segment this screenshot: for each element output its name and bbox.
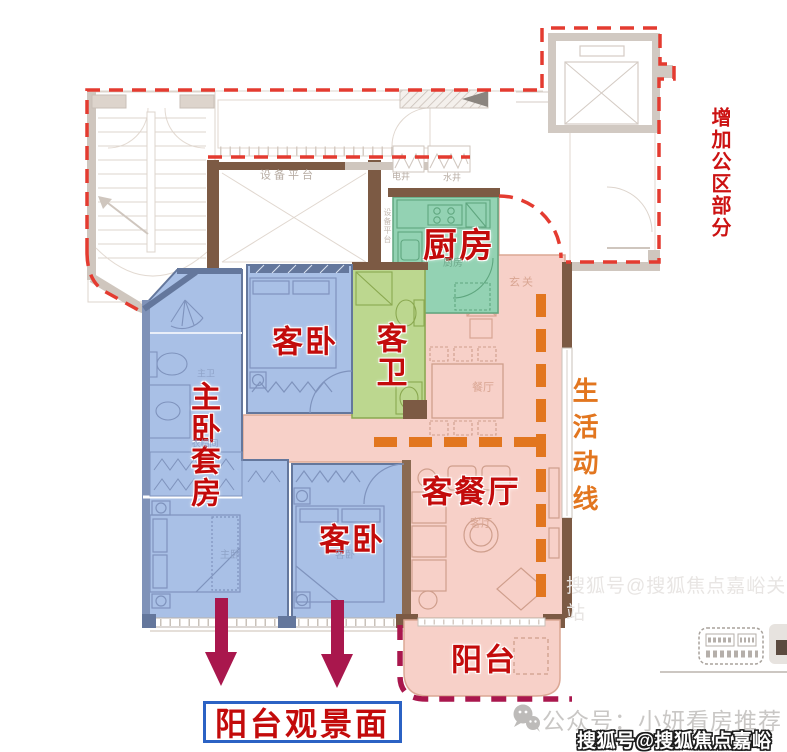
master-bath-small-label: 主卫 — [197, 370, 215, 379]
balcony-view-callout: 阳台观景面 — [203, 701, 402, 743]
added-public-area-label: 增加公区部分 — [709, 107, 729, 239]
kitchen-small-label: 厨房 — [443, 259, 463, 269]
water-shaft-label: 水井 — [443, 174, 461, 183]
electric-shaft-label: 电井 — [392, 173, 410, 182]
life-line-label: 生活动线 — [571, 377, 597, 521]
floorplan-image: 增加公区部分 厨房 客卧 客卫 主卧套房 客餐厅 客卧 阳台 生活动线 设备平台… — [0, 0, 787, 752]
watermark-sohu-faint: 搜狐号@搜狐焦点嘉峪关站 — [566, 571, 787, 625]
closet-small-label: 衣帽间 — [191, 440, 218, 449]
equipment-platform-side-label: 设备平台 — [383, 208, 391, 244]
dashed-stamp-icon — [660, 624, 787, 672]
room-label-balcony: 阳台 — [451, 645, 517, 676]
guest-bed-small-label: 客卧 — [335, 551, 355, 561]
master-bed-small-label: 主卧 — [220, 551, 240, 561]
equipment-platform-label: 设备平台 — [260, 171, 316, 182]
balcony-view-text: 阳台观景面 — [215, 699, 390, 745]
room-label-guest-bedroom-upper: 客卧 — [272, 327, 338, 358]
room-label-guest-bathroom: 客卫 — [374, 322, 405, 390]
wechat-bubbles-icon — [514, 705, 541, 733]
dining-small-label: 餐厅 — [472, 383, 494, 394]
room-label-living-dining: 客餐厅 — [422, 477, 521, 508]
watermark-sohu: 搜狐号@搜狐焦点嘉峪关站 — [577, 726, 787, 752]
living-small-label: 客厅 — [470, 519, 492, 530]
entry-label: 玄关 — [509, 278, 535, 289]
